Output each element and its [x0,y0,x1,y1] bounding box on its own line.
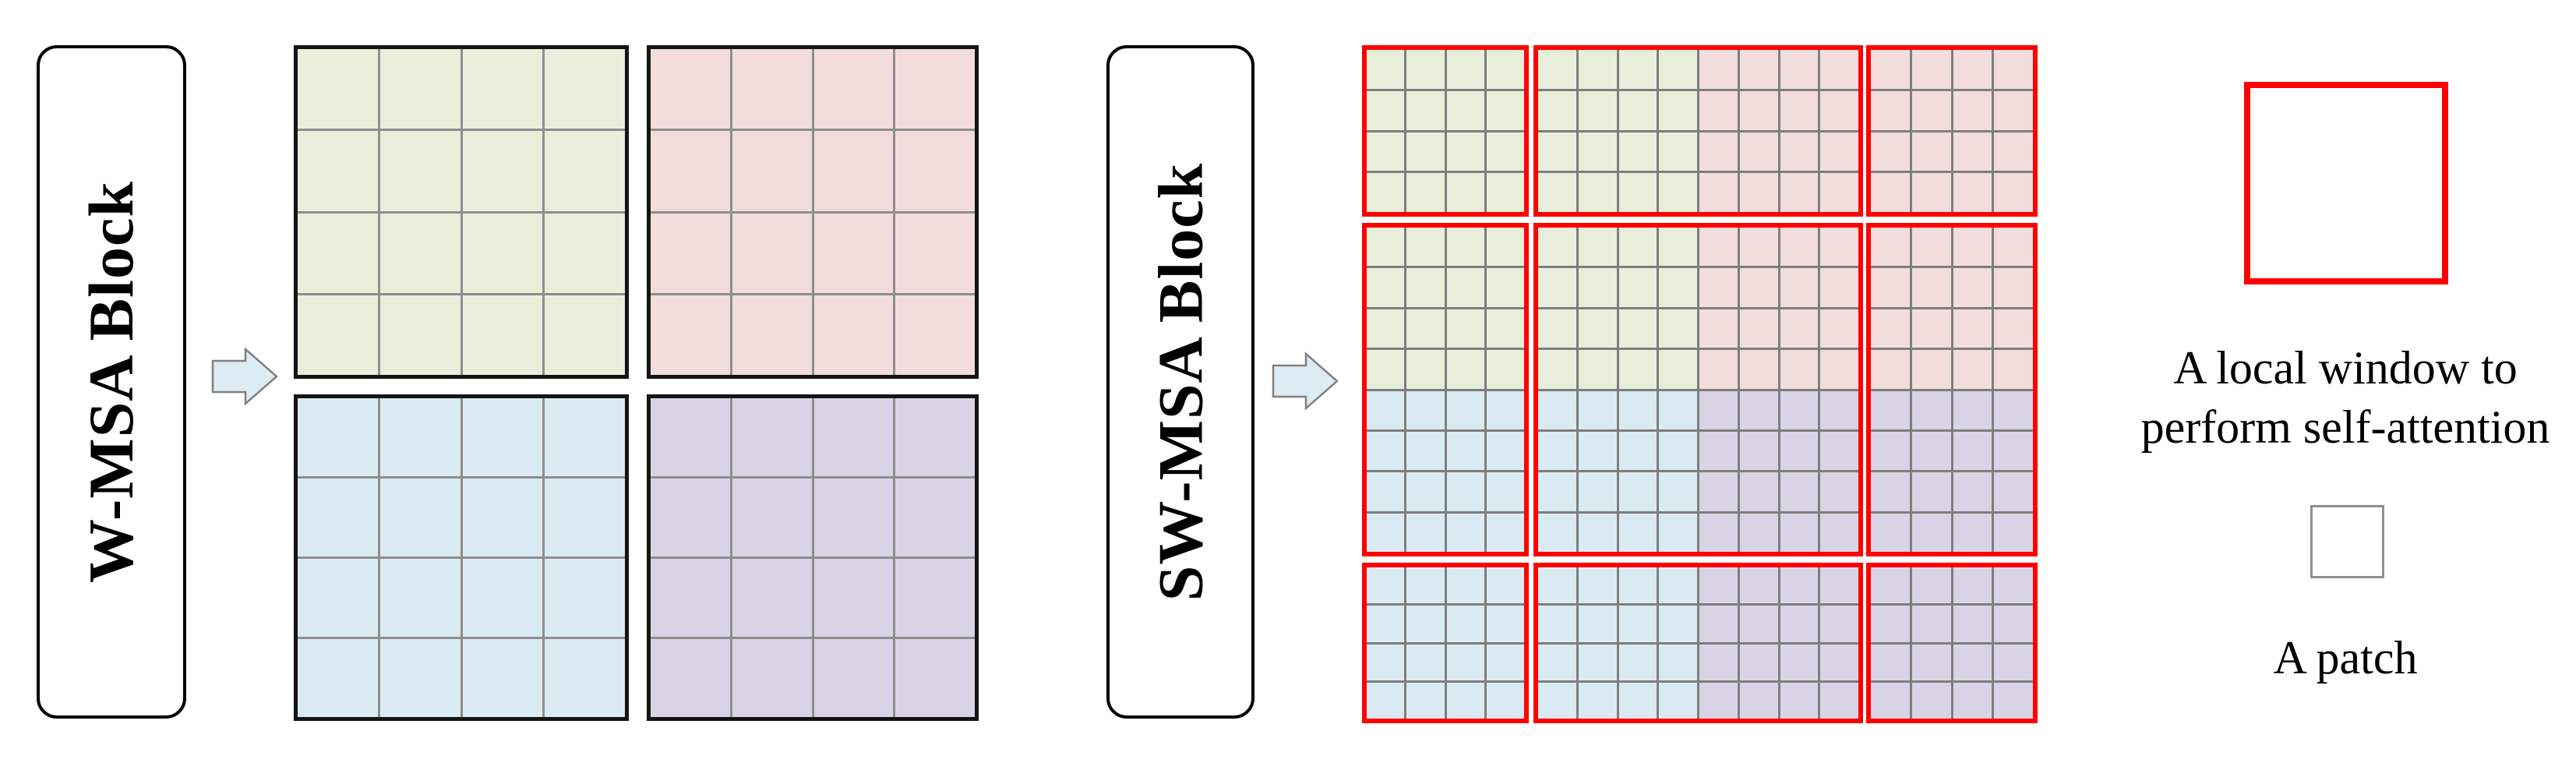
patch-cell [1953,391,1992,429]
patch-cell [1740,472,1778,510]
patch-cell [1487,132,1524,171]
patch-cell [651,295,730,375]
patch-cell [1994,606,2033,641]
patch-cell [463,398,543,476]
patch-cell [1447,606,1484,641]
patch-cell [1912,472,1951,510]
patch-cell [651,559,730,637]
patch-cell [1447,683,1484,719]
patch-cell [1579,391,1617,429]
patch-cell [1871,350,1910,388]
patch-cell [732,214,812,293]
patch-cell [380,639,461,717]
patch-cell [1487,645,1524,680]
patch-cell [1820,268,1858,306]
patch-cell [1699,309,1738,348]
patch-cell [1367,606,1404,641]
patch-cell [1447,309,1484,348]
patch-cell [1953,132,1992,171]
patch-cell [651,214,730,293]
patch-cell [1447,472,1484,510]
patch-cell [1406,350,1444,388]
patch-cell [1619,645,1657,680]
patch-cell [1447,350,1484,388]
patch-cell [1619,91,1657,130]
patch-cell [1367,567,1404,603]
patch-cell [1871,606,1910,641]
patch-cell [380,214,461,293]
patch-cell [1487,50,1524,89]
legend-patch-swatch [2310,505,2384,578]
patch-cell [1953,350,1992,388]
patch-cell [1619,50,1657,89]
patch-cell [380,398,461,476]
patch-cell [1699,173,1738,212]
patch-cell [1871,173,1910,212]
patch-cell [814,214,894,293]
patch-cell [1619,567,1657,603]
patch-cell [1780,683,1819,719]
patch-cell [895,49,975,129]
patch-cell [463,49,543,129]
patch-cell [545,214,625,293]
patch-cell [1487,391,1524,429]
patch-cell [1953,514,1992,552]
patch-cell [1953,606,1992,641]
patch-cell [1871,567,1910,603]
patch-cell [1579,228,1617,266]
patch-cell [380,295,461,375]
patch-cell [895,295,975,375]
patch-cell [1994,132,2033,171]
patch-cell [1487,683,1524,719]
patch-cell [1994,514,2033,552]
wmsa-block-label: W-MSA Block [79,181,143,583]
patch-cell [1538,268,1576,306]
swmsa-window-r2-c2 [1866,563,2038,723]
patch-cell [1367,472,1404,510]
patch-cell [1820,683,1858,719]
patch-cell [1619,228,1657,266]
patch-cell [1619,514,1657,552]
patch-cell [1447,268,1484,306]
patch-cell [463,639,543,717]
patch-cell [1740,228,1778,266]
patch-cell [1659,391,1697,429]
patch-cell [1406,432,1444,470]
patch-cell [1994,268,2033,306]
swmsa-window-r1-c2 [1866,223,2038,556]
patch-cell [1871,432,1910,470]
patch-cell [545,398,625,476]
patch-cell [1447,173,1484,212]
patch-cell [1740,391,1778,429]
patch-cell [814,639,894,717]
patch-cell [1659,432,1697,470]
wmsa-window-bottom-right [647,394,979,721]
legend-local-window-label: A local window to perform self-attention [2096,338,2576,457]
patch-cell [651,398,730,476]
patch-cell [651,639,730,717]
patch-cell [1579,173,1617,212]
patch-cell [1994,683,2033,719]
patch-cell [1912,173,1951,212]
patch-cell [1780,309,1819,348]
patch-cell [1487,268,1524,306]
patch-cell [1619,432,1657,470]
patch-cell [1406,91,1444,130]
patch-cell [1406,132,1444,171]
patch-cell [1659,683,1697,719]
patch-cell [1780,606,1819,641]
patch-cell [1953,472,1992,510]
patch-cell [1579,606,1617,641]
patch-cell [1820,309,1858,348]
patch-cell [1994,567,2033,603]
swmsa-block: SW-MSA Block [1106,45,1254,719]
patch-cell [1447,91,1484,130]
patch-cell [1820,350,1858,388]
right-arrow-icon [211,346,278,407]
patch-cell [1619,606,1657,641]
patch-cell [1780,567,1819,603]
patch-cell [1780,50,1819,89]
patch-cell [1659,50,1697,89]
patch-cell [1780,472,1819,510]
patch-cell [1538,91,1576,130]
swmsa-window-r1-c1 [1533,223,1863,556]
patch-cell [1871,391,1910,429]
patch-cell [1538,432,1576,470]
swmsa-window-r2-c0 [1362,563,1529,723]
patch-cell [1579,350,1617,388]
patch-cell [1367,173,1404,212]
patch-cell [1487,514,1524,552]
patch-cell [1619,268,1657,306]
swmsa-window-r0-c1 [1533,45,1863,217]
patch-cell [1367,350,1404,388]
patch-cell [1780,91,1819,130]
patch-cell [1953,91,1992,130]
patch-cell [1912,228,1951,266]
swmsa-block-label: SW-MSA Block [1149,163,1212,602]
patch-cell [1740,514,1778,552]
patch-cell [1538,514,1576,552]
patch-cell [1953,309,1992,348]
patch-cell [1659,514,1697,552]
patch-cell [1740,173,1778,212]
patch-cell [1406,645,1444,680]
patch-cell [1953,432,1992,470]
patch-cell [732,398,812,476]
patch-cell [1912,567,1951,603]
patch-cell [1367,514,1404,552]
patch-cell [814,49,894,129]
patch-cell [1699,391,1738,429]
patch-cell [1659,567,1697,603]
patch-cell [298,479,378,556]
patch-cell [1699,132,1738,171]
patch-cell [732,479,812,556]
patch-cell [1912,91,1951,130]
patch-cell [1447,391,1484,429]
patch-cell [1953,173,1992,212]
patch-cell [545,559,625,637]
patch-cell [814,398,894,476]
patch-cell [1406,228,1444,266]
patch-cell [895,398,975,476]
patch-cell [1871,228,1910,266]
patch-cell [545,479,625,556]
patch-cell [1912,683,1951,719]
patch-cell [1953,645,1992,680]
patch-cell [1406,683,1444,719]
legend-local-window-label-line1: A local window to [2096,338,2576,397]
patch-cell [1619,472,1657,510]
patch-cell [1740,606,1778,641]
patch-cell [1367,50,1404,89]
patch-cell [1820,50,1858,89]
patch-cell [1406,173,1444,212]
patch-cell [1659,173,1697,212]
patch-cell [1367,683,1404,719]
swmsa-window-r0-c0 [1362,45,1529,217]
patch-cell [1699,50,1738,89]
patch-cell [732,559,812,637]
right-arrow-icon [1272,351,1339,412]
patch-cell [1780,173,1819,212]
swmsa-window-r2-c1 [1533,563,1863,723]
patch-cell [298,49,378,129]
patch-cell [1912,50,1951,89]
patch-cell [1912,514,1951,552]
patch-cell [1406,50,1444,89]
patch-cell [1699,606,1738,641]
patch-cell [1994,50,2033,89]
patch-cell [1487,567,1524,603]
patch-cell [1953,683,1992,719]
patch-cell [1740,350,1778,388]
patch-cell [1367,91,1404,130]
patch-cell [651,131,730,210]
patch-cell [1538,606,1576,641]
patch-cell [1659,606,1697,641]
patch-cell [1912,645,1951,680]
patch-cell [1780,432,1819,470]
patch-cell [814,559,894,637]
patch-cell [1953,567,1992,603]
patch-cell [1579,309,1617,348]
patch-cell [1740,50,1778,89]
swmsa-window-r0-c2 [1866,45,2038,217]
patch-cell [651,49,730,129]
patch-cell [1820,173,1858,212]
patch-cell [1740,309,1778,348]
patch-cell [1367,432,1404,470]
patch-cell [1487,472,1524,510]
patch-cell [1447,132,1484,171]
patch-cell [1871,50,1910,89]
wmsa-block: W-MSA Block [37,45,186,719]
patch-cell [1367,391,1404,429]
patch-cell [651,479,730,556]
patch-cell [1579,645,1617,680]
patch-cell [732,639,812,717]
patch-cell [1820,391,1858,429]
patch-cell [545,49,625,129]
patch-cell [1406,268,1444,306]
patch-cell [895,479,975,556]
wmsa-window-top-right [647,45,979,379]
patch-cell [298,559,378,637]
patch-cell [1780,132,1819,171]
patch-cell [1699,432,1738,470]
patch-cell [1619,350,1657,388]
patch-cell [1871,309,1910,348]
patch-cell [1447,50,1484,89]
patch-cell [1740,645,1778,680]
patch-cell [298,295,378,375]
diagram-canvas: W-MSA Block SW-MSA Block A local window … [0,0,2576,763]
patch-cell [1699,645,1738,680]
patch-cell [1538,683,1576,719]
patch-cell [1659,132,1697,171]
patch-cell [1659,472,1697,510]
patch-cell [1780,268,1819,306]
patch-cell [1699,514,1738,552]
patch-cell [1780,645,1819,680]
patch-cell [1447,514,1484,552]
patch-cell [1538,391,1576,429]
patch-cell [298,131,378,210]
legend-patch-label: A patch [2096,628,2576,687]
patch-cell [1367,309,1404,348]
patch-cell [1406,472,1444,510]
patch-cell [1912,132,1951,171]
patch-cell [1619,683,1657,719]
patch-cell [1820,514,1858,552]
patch-cell [1619,173,1657,212]
patch-cell [1820,432,1858,470]
patch-cell [895,559,975,637]
patch-cell [1619,309,1657,348]
patch-cell [463,295,543,375]
patch-cell [1579,132,1617,171]
legend-local-window-swatch [2244,82,2448,284]
patch-cell [1780,391,1819,429]
patch-cell [1538,350,1576,388]
patch-cell [1487,350,1524,388]
patch-cell [463,479,543,556]
patch-cell [1994,91,2033,130]
patch-cell [1579,50,1617,89]
patch-cell [1820,132,1858,171]
patch-cell [1538,567,1576,603]
patch-cell [1699,268,1738,306]
patch-cell [1487,606,1524,641]
patch-cell [1699,91,1738,130]
patch-cell [1659,309,1697,348]
patch-cell [1912,350,1951,388]
patch-cell [1820,91,1858,130]
patch-cell [1487,173,1524,212]
patch-cell [1740,683,1778,719]
patch-cell [1447,567,1484,603]
patch-cell [1953,228,1992,266]
patch-cell [732,131,812,210]
patch-cell [380,559,461,637]
patch-cell [1447,432,1484,470]
patch-cell [1740,91,1778,130]
patch-cell [814,479,894,556]
patch-cell [1871,645,1910,680]
patch-cell [1619,391,1657,429]
patch-cell [1820,645,1858,680]
patch-cell [895,131,975,210]
patch-cell [1994,228,2033,266]
patch-cell [1579,268,1617,306]
patch-cell [1367,268,1404,306]
patch-cell [1871,514,1910,552]
patch-cell [1699,567,1738,603]
wmsa-window-bottom-left [294,394,629,721]
patch-cell [1699,472,1738,510]
patch-cell [1406,309,1444,348]
patch-cell [1659,228,1697,266]
patch-cell [298,214,378,293]
patch-cell [1579,514,1617,552]
patch-cell [1406,567,1444,603]
patch-cell [1487,91,1524,130]
patch-cell [1579,683,1617,719]
patch-cell [380,479,461,556]
patch-cell [1871,268,1910,306]
patch-cell [1820,606,1858,641]
patch-cell [1538,132,1576,171]
patch-cell [1871,472,1910,510]
patch-cell [1953,50,1992,89]
patch-cell [1740,432,1778,470]
patch-cell [1994,645,2033,680]
patch-cell [380,49,461,129]
patch-cell [1579,472,1617,510]
patch-cell [1740,268,1778,306]
patch-cell [1780,350,1819,388]
patch-cell [1871,683,1910,719]
patch-cell [1820,472,1858,510]
swmsa-window-r1-c0 [1362,223,1529,556]
patch-cell [1367,228,1404,266]
patch-cell [1994,432,2033,470]
patch-cell [1406,514,1444,552]
patch-cell [1780,228,1819,266]
patch-cell [1871,91,1910,130]
patch-cell [1912,309,1951,348]
patch-cell [1659,268,1697,306]
patch-cell [1579,91,1617,130]
patch-cell [1487,309,1524,348]
patch-cell [1740,132,1778,171]
patch-cell [463,559,543,637]
patch-cell [1538,472,1576,510]
patch-cell [1487,432,1524,470]
patch-cell [732,295,812,375]
patch-cell [1487,228,1524,266]
patch-cell [1699,683,1738,719]
patch-cell [1579,567,1617,603]
patch-cell [1820,228,1858,266]
patch-cell [1579,432,1617,470]
